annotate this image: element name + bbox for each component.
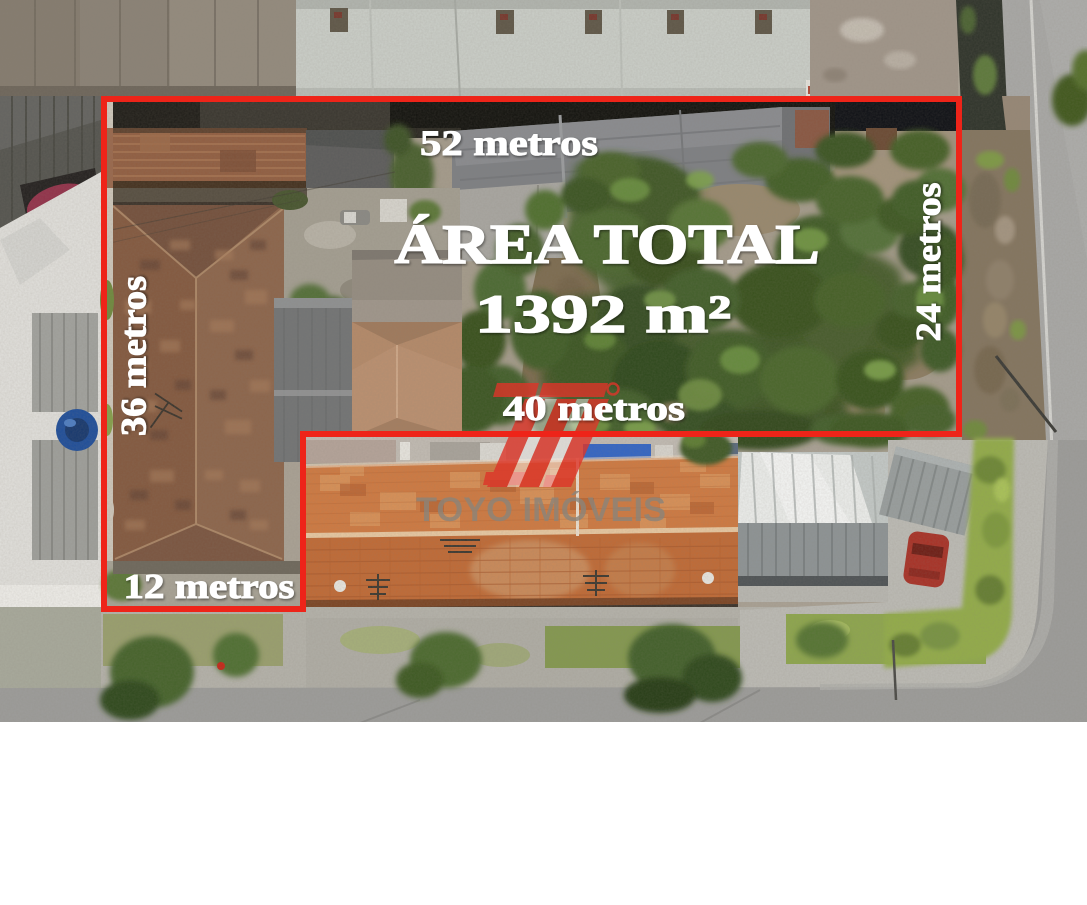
svg-text:40 metros: 40 metros <box>503 389 685 428</box>
svg-text:36 metros: 36 metros <box>113 276 153 436</box>
svg-text:TOYO IMÓVEIS: TOYO IMÓVEIS <box>416 491 666 529</box>
svg-text:24 metros: 24 metros <box>909 183 948 342</box>
svg-text:12 metros: 12 metros <box>124 567 295 606</box>
svg-text:52 metros: 52 metros <box>420 123 598 163</box>
svg-text:ÁREA TOTAL: ÁREA TOTAL <box>395 214 820 276</box>
svg-text:1392 m²: 1392 m² <box>475 284 731 344</box>
